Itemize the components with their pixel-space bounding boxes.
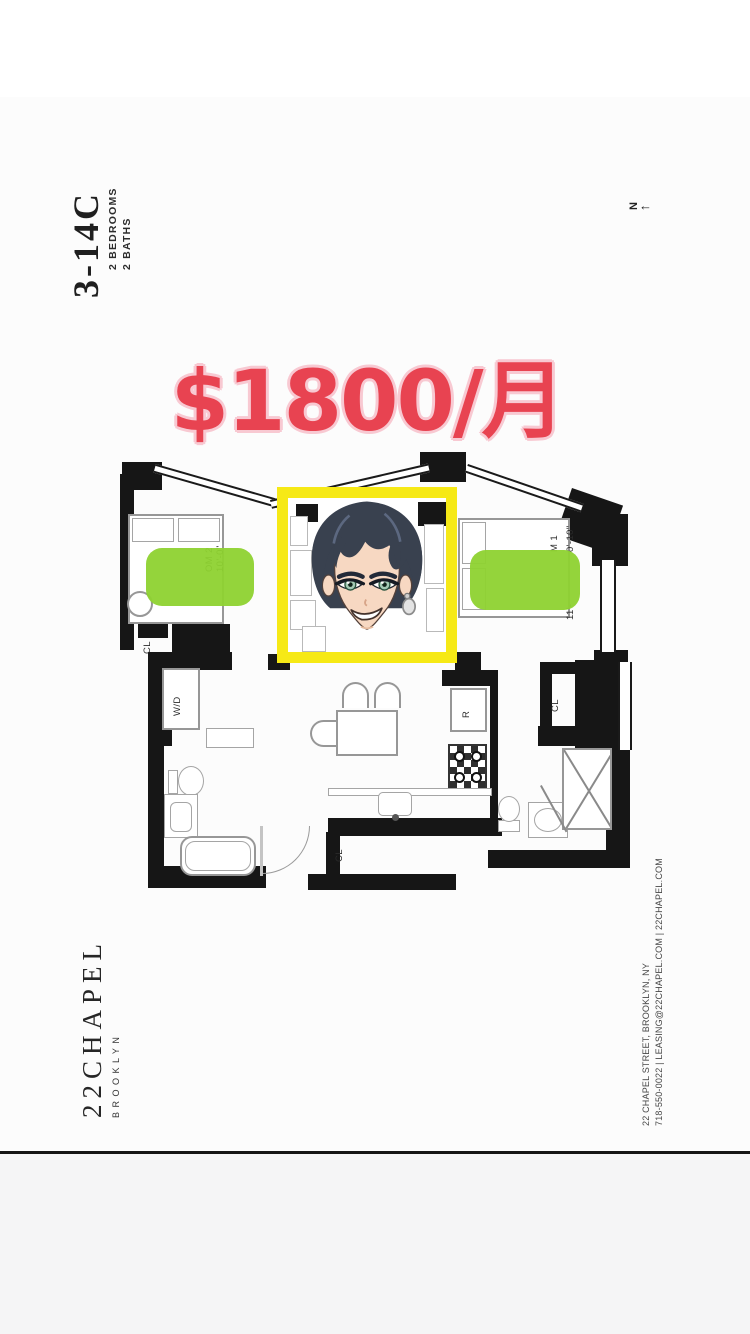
pillow [132, 518, 174, 542]
dining-chair [374, 682, 401, 708]
closet-label-entry: CL [334, 849, 345, 862]
avatar-box [277, 487, 457, 663]
refrigerator-label: R [461, 711, 472, 718]
toilet-bowl [498, 796, 520, 822]
closet-label-right: CL [550, 699, 561, 712]
wall-segment [148, 728, 172, 746]
shower-x-icon [564, 750, 612, 830]
window-bedroom1 [465, 464, 583, 512]
stove [448, 744, 487, 790]
wall-segment [138, 624, 168, 638]
dining-chair [342, 682, 369, 708]
avatar-face [288, 498, 446, 652]
unit-baths: 2 BATHS [120, 187, 134, 270]
toilet-tank [168, 770, 178, 794]
bathtub-inner [185, 841, 251, 871]
burner [454, 751, 465, 762]
bath-shelf [206, 728, 254, 748]
wall-segment [540, 662, 578, 674]
sink-basin [170, 802, 192, 832]
pillow [178, 518, 220, 542]
dining-table [336, 710, 398, 756]
wall-segment [540, 666, 552, 730]
shower [562, 748, 612, 830]
unit-bedrooms: 2 BEDROOMS [106, 187, 120, 270]
floor-plan: OM 2 10'-0" CL M 1 0'-10" 11'- W/D [120, 448, 635, 898]
washer-dryer-label: W/D [172, 696, 183, 716]
unit-specs: 2 BEDROOMS 2 BATHS [106, 187, 134, 270]
wall-segment [455, 652, 481, 676]
toilet-bowl [178, 766, 204, 796]
faucet [392, 814, 399, 821]
highlight-bed2 [146, 548, 254, 606]
kitchen-sink [378, 792, 412, 816]
bedroom1-dim-top: 0'-10" [565, 525, 576, 552]
brand-logo-sub: BROOKLYN [108, 938, 124, 1118]
north-compass: N ← [630, 198, 652, 213]
contact-block: 22 CHAPEL STREET, BROOKLYN, NY 718-550-0… [640, 858, 666, 1126]
north-arrow-icon: ← [639, 198, 652, 213]
highlight-bed1 [470, 550, 580, 610]
wall-segment [538, 726, 584, 746]
wall-segment [488, 850, 630, 868]
unit-number: 3-14C [66, 191, 106, 298]
burner [454, 772, 465, 783]
contact-address: 22 CHAPEL STREET, BROOKLYN, NY [640, 858, 653, 1126]
window-bedroom1-side [600, 560, 616, 652]
dining-chair [310, 720, 336, 747]
burner [471, 751, 482, 762]
north-label: N [628, 202, 640, 210]
contact-details: 718-550-0022 | LEASING@22CHAPEL.COM | 22… [653, 858, 666, 1126]
sink-basin [534, 808, 562, 832]
door-arc [262, 826, 310, 874]
burner [471, 772, 482, 783]
screenshot: 3-14C 2 BEDROOMS 2 BATHS N ← $1800/月 [0, 0, 750, 1334]
brand-logo-text: 22CHAPEL [76, 938, 108, 1118]
bottom-strip [0, 1154, 750, 1334]
brand-logo: 22CHAPEL BROOKLYN [76, 938, 124, 1118]
price-overlay: $1800/月 [171, 334, 564, 455]
door-leaf [260, 826, 263, 876]
closet-label-bedroom2: CL [142, 641, 153, 654]
unit-number-text: 3-14C [66, 191, 106, 298]
window-side [618, 662, 632, 750]
wall-segment [328, 818, 502, 836]
